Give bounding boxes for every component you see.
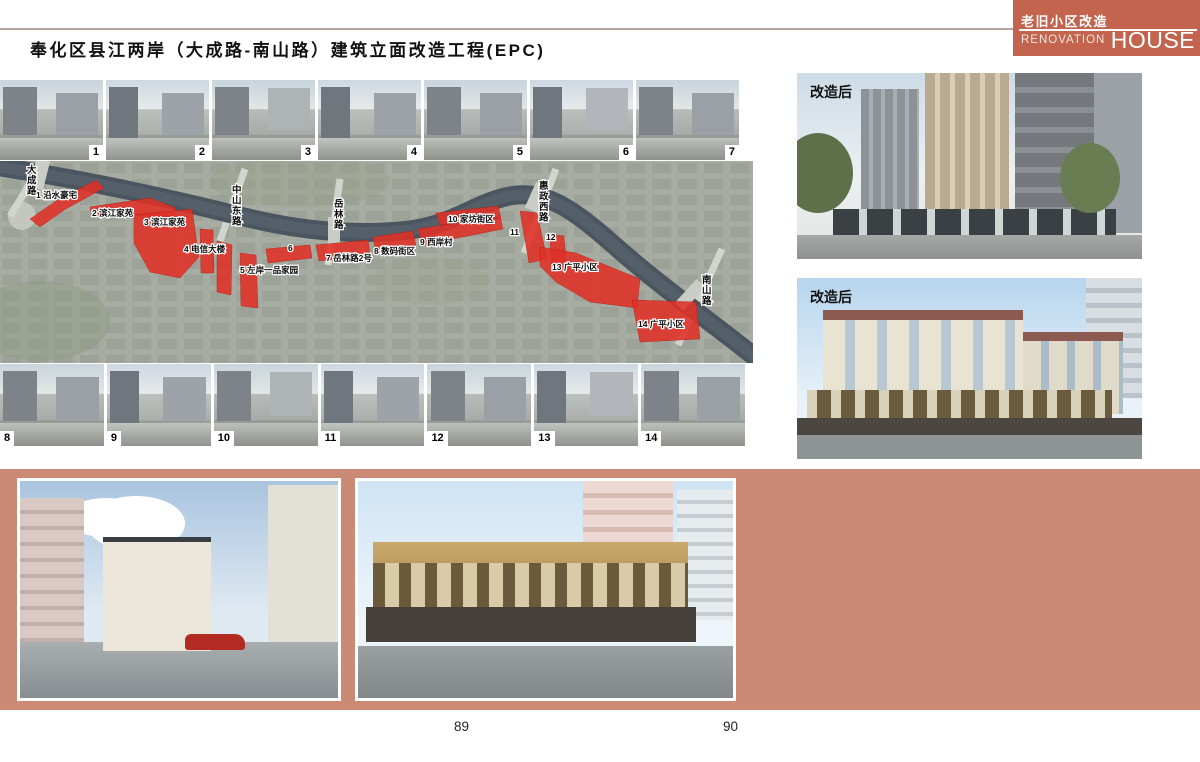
street-photo-10: 10 <box>214 364 318 446</box>
after-render-bottom: 改造后 <box>797 278 1142 459</box>
street-photo-7: 7 <box>636 80 739 160</box>
street-photo-5: 5 <box>424 80 527 160</box>
render-storefront-base <box>366 607 696 642</box>
photo-number-badge: 5 <box>513 145 527 160</box>
map-road-label: 岳林路 <box>334 198 345 231</box>
render-road <box>797 435 1142 459</box>
render-shopping-street <box>355 478 736 701</box>
map-area-label-3: 3 滨江家苑 <box>144 217 186 227</box>
renovation-area-patch <box>240 253 258 308</box>
photo-number-badge: 13 <box>534 431 554 446</box>
photo-number-badge: 8 <box>0 431 14 446</box>
brand-logo-text: HOUSE <box>1111 27 1195 54</box>
render-storefront-base <box>797 418 1142 436</box>
render-road <box>358 646 733 698</box>
map-area-label-14: 14 广平小区 <box>638 319 684 329</box>
photo-number-badge: 1 <box>89 145 103 160</box>
map-area-label-6: 6 <box>288 243 293 253</box>
map-road-label: 南山路 <box>702 274 713 307</box>
render-building <box>20 498 84 650</box>
render-red-car <box>185 634 245 650</box>
street-photo-11: 11 <box>321 364 425 446</box>
brochure-page: 老旧小区改造 RENOVATION HOUSE 奉化区县江两岸（大成路-南山路）… <box>0 0 1200 762</box>
map-area-label-8: 8 数码街区 <box>374 246 416 256</box>
street-photo-6: 6 <box>530 80 633 160</box>
photo-number-badge: 12 <box>427 431 447 446</box>
render-building <box>268 485 338 650</box>
street-photo-4: 4 <box>318 80 421 160</box>
map-area-label-12: 12 <box>546 232 556 242</box>
map-area-label-2: 2 滨江家苑 <box>92 208 134 218</box>
photo-number-badge: 9 <box>107 431 121 446</box>
render-arch-band <box>373 563 688 606</box>
street-photo-14: 14 <box>641 364 745 446</box>
render-road <box>797 235 1142 259</box>
brand-tag-en: RENOVATION <box>1021 34 1105 46</box>
render-tree <box>1060 143 1120 213</box>
photo-number-badge: 7 <box>725 145 739 160</box>
page-number-right: 90 <box>723 719 738 734</box>
street-photo-9: 9 <box>107 364 211 446</box>
render-roof <box>1023 332 1123 341</box>
render-roof <box>823 310 1023 320</box>
street-photo-12: 12 <box>427 364 531 446</box>
aerial-map: 大成路中山东路岳林路惠政西路南山路1 沿水豪宅2 滨江家苑3 滨江家苑4 电信大… <box>0 161 753 363</box>
after-render-top: 改造后 <box>797 73 1142 259</box>
street-photo-3: 3 <box>212 80 315 160</box>
street-photo-8: 8 <box>0 364 104 446</box>
header-brand-block: 老旧小区改造 RENOVATION HOUSE <box>1013 0 1200 56</box>
photo-number-badge: 2 <box>195 145 209 160</box>
map-road-label: 惠政西路 <box>539 180 550 224</box>
before-photo-strip-top: 1234567 <box>0 80 739 160</box>
map-area-label-1: 1 沿水豪宅 <box>36 190 78 200</box>
bottom-band: 项目名称：奉化区县江两岸（大成路-南山路）建筑立面改造工程建设单位：宁波市奉化区… <box>0 469 1200 710</box>
render-historic-block <box>17 478 341 701</box>
render-shopfronts <box>833 209 1116 235</box>
brand-tag-cn: 老旧小区改造 <box>1021 11 1108 30</box>
after-label: 改造后 <box>810 82 852 102</box>
street-photo-13: 13 <box>534 364 638 446</box>
aerial-map-svg: 大成路中山东路岳林路惠政西路南山路1 沿水豪宅2 滨江家苑3 滨江家苑4 电信大… <box>0 161 753 363</box>
page-number-left: 89 <box>454 719 469 734</box>
map-road-label: 中山东路 <box>232 184 243 228</box>
street-photo-1: 1 <box>0 80 103 160</box>
before-photo-strip-bottom: 891011121314 <box>0 364 745 446</box>
map-area-label-11: 11 <box>510 227 519 237</box>
page-title: 奉化区县江两岸（大成路-南山路）建筑立面改造工程(EPC) <box>30 36 545 61</box>
map-area-label-9: 9 西岸村 <box>420 237 453 247</box>
map-area-label-10: 10 家坊街区 <box>448 214 494 224</box>
render-tower <box>925 73 1009 217</box>
after-label: 改造后 <box>810 287 852 307</box>
header-rule <box>0 28 1013 30</box>
photo-number-badge: 4 <box>407 145 421 160</box>
street-photo-2: 2 <box>106 80 209 160</box>
photo-number-badge: 10 <box>214 431 234 446</box>
photo-number-badge: 14 <box>641 431 661 446</box>
photo-number-badge: 11 <box>321 431 341 446</box>
map-area-label-5: 5 左岸一品家园 <box>240 265 298 275</box>
render-tower <box>861 89 919 215</box>
map-area-label-7: 7 岳林路2号 <box>326 253 372 263</box>
map-area-label-4: 4 电信大楼 <box>184 244 226 254</box>
photo-number-badge: 6 <box>619 145 633 160</box>
photo-number-badge: 3 <box>301 145 315 160</box>
map-area-label-13: 13 广平小区 <box>552 262 598 272</box>
